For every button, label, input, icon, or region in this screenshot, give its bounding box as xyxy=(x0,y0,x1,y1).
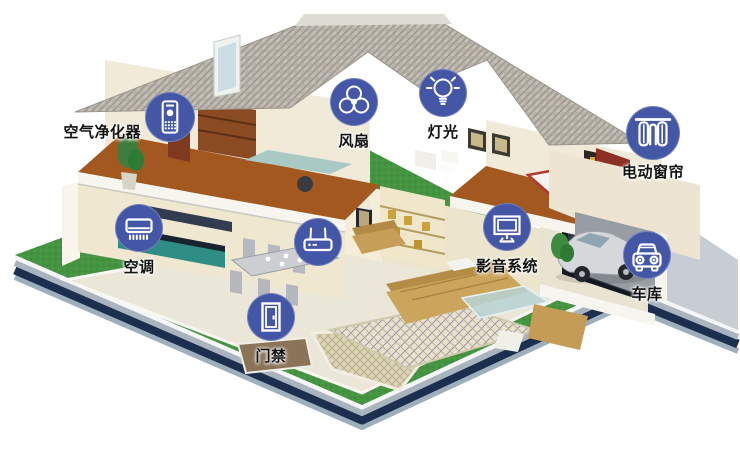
hotspot-door-access: 门禁 xyxy=(247,293,295,341)
monitor-icon[interactable] xyxy=(483,203,531,251)
hotspot-ac: 空调 xyxy=(115,204,163,252)
house-illustration xyxy=(0,0,740,453)
hotspot-fan: 风扇 xyxy=(330,78,378,126)
smart-home-diagram: 空气净化器 风扇 灯光 xyxy=(0,0,740,453)
hotspot-air-purifier: 空气净化器 xyxy=(145,92,195,142)
hotspot-light: 灯光 xyxy=(419,69,467,117)
hotspot-curtain: 电动窗帘 xyxy=(626,106,680,160)
hotspot-label: 风扇 xyxy=(338,130,369,151)
hotspot-garage: 车库 xyxy=(623,231,671,279)
hotspot-label: 电动窗帘 xyxy=(622,161,684,182)
door-icon[interactable] xyxy=(247,293,295,341)
curtain-icon[interactable] xyxy=(626,106,680,160)
light-bulb-icon[interactable] xyxy=(419,69,467,117)
hotspot-label: 车库 xyxy=(631,283,662,304)
hotspot-label: 空气净化器 xyxy=(63,121,141,142)
hotspot-router xyxy=(294,218,342,266)
air-purifier-icon[interactable] xyxy=(145,92,195,142)
hotspot-label: 影音系统 xyxy=(476,255,538,276)
car-icon[interactable] xyxy=(623,231,671,279)
hotspot-av-system: 影音系统 xyxy=(483,203,531,251)
router-icon[interactable] xyxy=(294,218,342,266)
hotspot-label: 灯光 xyxy=(427,121,458,142)
hotspot-label: 门禁 xyxy=(255,345,286,366)
air-conditioner-icon[interactable] xyxy=(115,204,163,252)
hotspot-label: 空调 xyxy=(123,256,154,277)
fan-icon[interactable] xyxy=(330,78,378,126)
